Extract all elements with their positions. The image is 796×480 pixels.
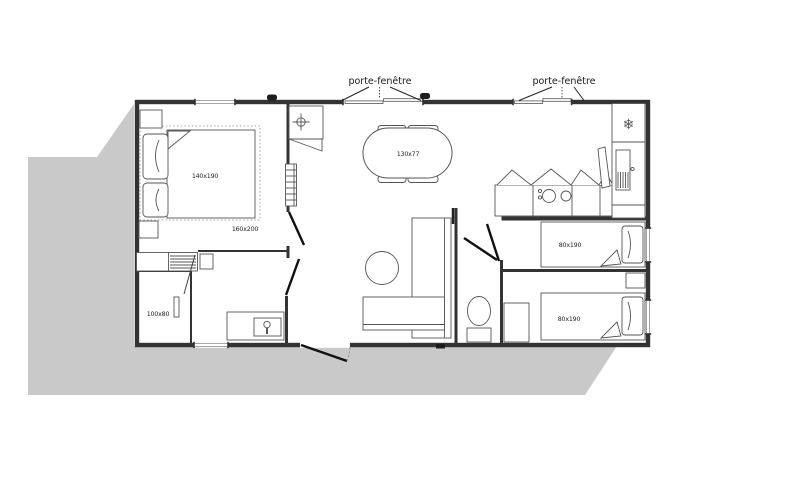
fridge-snowflake-icon: ❄ <box>623 117 635 133</box>
shelf-unit <box>200 254 213 269</box>
pillow <box>143 183 168 217</box>
shower-door-panel <box>174 297 179 317</box>
window-master-bedroom <box>194 99 236 105</box>
toilet-tank <box>467 328 491 342</box>
wc <box>467 297 491 343</box>
shower-dimension-label: 100x80 <box>147 311 170 318</box>
nightstand <box>140 110 162 128</box>
threshold-mark <box>436 344 445 349</box>
sink-knob <box>538 189 541 192</box>
bedroom-1: 80x190 <box>541 222 645 267</box>
oven-handle <box>631 167 634 170</box>
nightstand <box>626 273 645 288</box>
window-bedroom-1 <box>645 227 651 263</box>
pillow <box>622 297 643 335</box>
roof-vent-icon <box>420 93 430 99</box>
bed-dimension-label: 80x190 <box>558 316 581 323</box>
pillow <box>622 226 643 263</box>
wardrobe <box>504 303 529 342</box>
radiator <box>286 164 297 206</box>
nightstand <box>139 221 158 238</box>
round-stool <box>366 252 399 285</box>
window-porte-fenetre-left <box>342 99 424 106</box>
boiler-cabinet <box>289 106 323 139</box>
floor-plan-canvas: 140x190 160x200 100x80 130x77 <box>0 0 796 480</box>
toilet-bowl <box>468 297 491 326</box>
window-bathroom <box>193 342 229 348</box>
porte-fenetre-label-left: porte-fenêtre <box>348 76 411 87</box>
window-bedroom-2 <box>645 299 651 335</box>
sink-bowl <box>543 190 556 203</box>
bed-dimension-label: 80x190 <box>559 242 582 249</box>
bed-dimension-label: 140x190 <box>192 173 219 180</box>
sink-knob <box>538 196 541 199</box>
sofa-horizontal <box>363 297 445 330</box>
faucet-icon <box>264 321 270 327</box>
porte-fenetre-label-right: porte-fenêtre <box>532 76 595 87</box>
bed-area-dimension-label: 160x200 <box>232 226 259 233</box>
annotations: porte-fenêtre porte-fenêtre <box>342 76 596 101</box>
sink-bowl-small <box>561 191 571 201</box>
roof-vent-icon <box>267 95 277 101</box>
table-dimension-label: 130x77 <box>397 151 420 158</box>
